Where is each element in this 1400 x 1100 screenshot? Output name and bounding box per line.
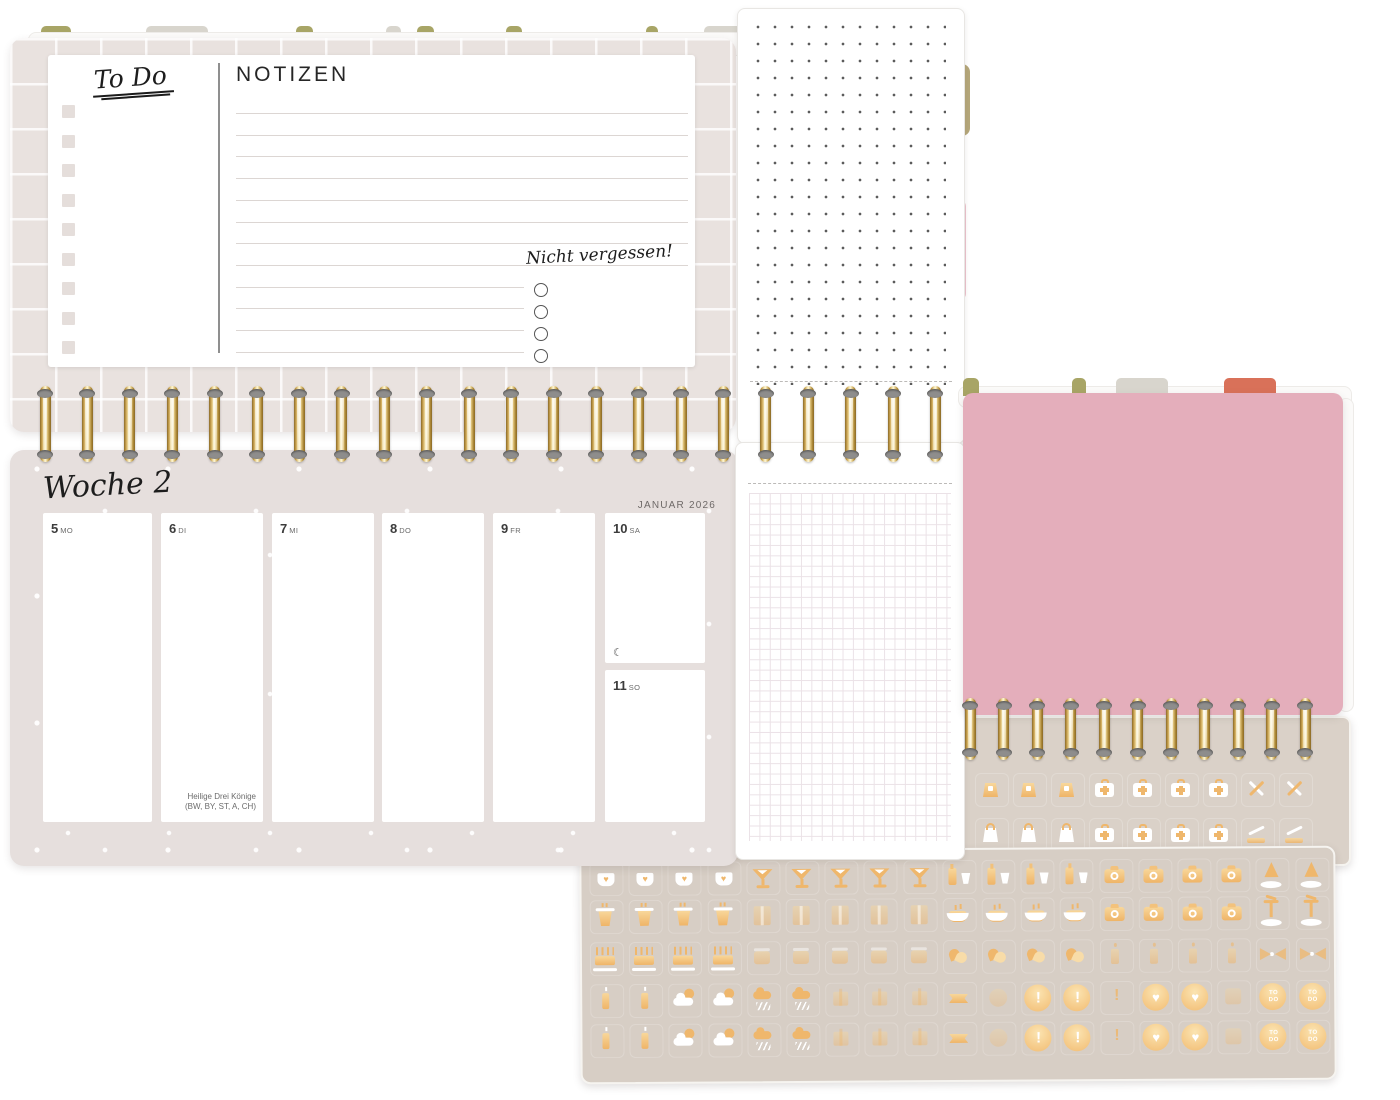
day-number: 11 [613, 678, 627, 693]
sticker-giftwrap-icon [746, 899, 780, 933]
day-column-saturday: 10SA ☾ [605, 513, 705, 663]
punched-hole [1063, 701, 1079, 710]
punched-hole [461, 450, 477, 459]
sticker-shape [715, 910, 730, 925]
sticker-shape [986, 823, 995, 830]
sticker-shape [1226, 1028, 1242, 1044]
sticker-roundcake-icon [903, 940, 937, 974]
sticker-shape [800, 879, 803, 885]
punched-hole [631, 389, 647, 398]
sticker-giftfaint-icon [865, 1022, 899, 1056]
sticker-shape [1064, 786, 1069, 791]
punched-hole [1163, 748, 1179, 757]
sticker-handheart-icon [943, 940, 977, 974]
sticker-giftfaint-icon [826, 1023, 860, 1057]
sticker-shape [839, 989, 842, 1006]
sticker-shape [879, 1028, 882, 1045]
sticker-candles2-icon [590, 984, 624, 1018]
reminder-bullet [534, 327, 548, 341]
sticker-shape [753, 991, 771, 999]
sticker-shape [1103, 831, 1107, 840]
punched-hole [1297, 701, 1313, 710]
sticker-shape [1217, 831, 1221, 840]
punched-hole [376, 389, 392, 398]
sticker-shape [713, 907, 732, 910]
notes-ruled-lines [236, 55, 688, 367]
sticker-shape [1275, 948, 1286, 960]
sticker-shape [1300, 881, 1321, 888]
sticker-shape [756, 1002, 770, 1010]
sticker-shape [1024, 823, 1033, 830]
sticker-shape: ! [1100, 1027, 1134, 1045]
sticker-cloudsun-icon [708, 983, 742, 1017]
punched-hole [715, 450, 731, 459]
sticker-shape [949, 1034, 968, 1043]
reminder-bullet [534, 283, 548, 297]
sticker-todocircle-icon: TO DO [1296, 1020, 1330, 1054]
punched-hole [885, 389, 901, 398]
sticker-roundcake-icon [864, 940, 898, 974]
spiral-ring [462, 386, 476, 462]
sticker-shape [1153, 943, 1156, 947]
sticker-roundcake-icon [825, 941, 859, 975]
sticker-candles2-icon [630, 1024, 664, 1058]
punched-hole [758, 450, 774, 459]
sticker-heartcircle-icon: ♥ [1178, 980, 1212, 1014]
sticker-faintsquare-icon [1217, 980, 1251, 1014]
todo-checkbox [62, 341, 75, 354]
sticker-giftwrap-icon [786, 899, 820, 933]
punched-hole [962, 701, 978, 710]
sticker-mug-icon: ♥ [707, 861, 741, 895]
sticker-shape [602, 993, 609, 1009]
punched-hole [419, 389, 435, 398]
sticker-shape [918, 878, 921, 884]
punched-hole [588, 389, 604, 398]
sticker-shape [918, 988, 921, 1005]
sticker-shape [1179, 831, 1183, 840]
sticker-shape: ! [1061, 1029, 1095, 1046]
ruled-line [236, 113, 688, 114]
sticker-champagne-icon [1021, 859, 1055, 893]
perforation-line [750, 381, 952, 382]
spiral-ring [886, 386, 900, 462]
day-column-thursday: 8DO [382, 513, 484, 822]
punched-hole [376, 450, 392, 459]
sticker-shape [1026, 786, 1031, 791]
day-number: 10 [613, 521, 627, 536]
sticker-shape [1149, 910, 1157, 918]
sticker-shape [754, 951, 770, 964]
sticker-sheet-back [963, 716, 1351, 866]
sticker-shape [1217, 786, 1221, 795]
sticker-shape [1025, 912, 1047, 920]
todo-notes-card: To Do NOTIZEN Nicht vergessen! [48, 55, 695, 367]
punched-hole [800, 389, 816, 398]
sticker-shape [635, 908, 654, 911]
punched-hole [503, 389, 519, 398]
day-column-wednesday: 7MI [272, 513, 374, 822]
sticker-shape [1062, 823, 1071, 830]
day-weekday: MO [60, 526, 73, 535]
punched-hole [546, 450, 562, 459]
sticker-tree-icon [1256, 858, 1290, 892]
sticker-roundcake-icon [786, 941, 820, 975]
sticker-bag-icon [1051, 773, 1085, 807]
sticker-shape: ! [1100, 987, 1134, 1005]
punched-hole [1130, 748, 1146, 757]
sticker-cloudsun-icon [668, 984, 702, 1018]
sticker-bowl-icon [1060, 897, 1094, 931]
sticker-shape [1299, 948, 1310, 960]
punched-hole [334, 450, 350, 459]
ruled-line [236, 200, 688, 201]
punched-hole [1029, 748, 1045, 757]
sticker-shape [674, 998, 694, 1006]
todo-checkbox [62, 282, 75, 295]
day-weekday: SO [629, 683, 641, 692]
sticker-shape [713, 997, 733, 1005]
sticker-shape: ! [1022, 1029, 1056, 1046]
sticker-shape [795, 1002, 809, 1010]
sticker-faintcircle-icon [982, 1022, 1016, 1056]
sticker-shape [602, 1033, 609, 1049]
punched-hole [249, 450, 265, 459]
sticker-mug-icon: ♥ [668, 862, 702, 896]
spiral-ring [589, 386, 603, 462]
sticker-shape [1072, 949, 1087, 964]
sticker-shape [840, 879, 843, 885]
spiral-ring [335, 386, 349, 462]
sticker-cup-icon [668, 900, 702, 934]
spiral-ring [1131, 698, 1145, 760]
punched-hole [546, 389, 562, 398]
spiral-ring [674, 386, 688, 462]
sticker-mug-icon: ♥ [629, 862, 663, 896]
sticker-shape [878, 905, 881, 924]
sticker-cloudsun-icon [708, 1023, 742, 1057]
sticker-shape [1040, 872, 1049, 883]
punched-hole [1063, 748, 1079, 757]
sticker-shape [635, 947, 653, 955]
sticker-camera-icon [1099, 859, 1133, 893]
sticker-shape [1304, 862, 1318, 877]
sticker-shape [713, 955, 733, 964]
sticker-shape [989, 989, 1007, 1007]
punched-hole [673, 389, 689, 398]
sticker-medkit-icon [1089, 773, 1123, 807]
sticker-champagne-icon [981, 860, 1015, 894]
todo-checkbox [62, 135, 75, 148]
sticker-shape [674, 1038, 694, 1046]
sticker-shape [793, 948, 809, 951]
sticker-handheart-icon [1021, 939, 1055, 973]
week-calendar-page: Woche 2 JANUAR 2026 5MO 6DI Heilige Drei… [10, 450, 738, 866]
sticker-shape: ♥ [1178, 1029, 1212, 1044]
punched-hole [996, 748, 1012, 757]
sticker-raincloud-icon [786, 1023, 820, 1057]
sticker-camera-icon [1217, 896, 1251, 930]
sticker-shape [713, 1037, 733, 1045]
sticker-camera-icon [1138, 859, 1172, 893]
sticker-cup-icon [707, 899, 741, 933]
sticker-shape: TO DO [1296, 990, 1330, 1003]
reminder-bullet [534, 349, 548, 363]
todo-checkbox [62, 105, 75, 118]
sticker-sheet-front: ♥♥♥♥!!!♥♥TO DOTO DO!!!♥♥TO DOTO DO [579, 846, 1336, 1085]
sticker-shape [1021, 828, 1036, 842]
spiral-ring [716, 386, 730, 462]
sticker-giftfaint-icon [864, 982, 898, 1016]
sticker-shape [1247, 838, 1265, 843]
sticker-cake-icon [590, 942, 624, 976]
sticker-shape [988, 786, 993, 791]
sticker-todocircle-icon: TO DO [1257, 1020, 1291, 1054]
sticker-cake-icon [668, 942, 702, 976]
spiral-ring [1030, 698, 1044, 760]
punched-hole [122, 450, 138, 459]
sticker-raincloud-icon [747, 983, 781, 1017]
spiral-ring [1064, 698, 1078, 760]
punched-hole [715, 389, 731, 398]
day-weekday: MI [289, 526, 298, 535]
punched-hole [885, 450, 901, 459]
spiral-ring [997, 698, 1011, 760]
day-number: 8 [390, 521, 397, 536]
sticker-exclcircle-icon: ! [1060, 981, 1094, 1015]
sticker-shape [753, 1031, 771, 1039]
sticker-flagbow-icon [943, 982, 977, 1016]
sticker-todocircle-icon: TO DO [1256, 980, 1290, 1014]
sticker-shape [1000, 873, 1009, 884]
sticker-giftwrap-icon [825, 899, 859, 933]
sticker-shape [879, 878, 882, 884]
todo-heading: To Do [91, 60, 174, 98]
day-number: 9 [501, 521, 508, 536]
punched-hole [79, 450, 95, 459]
sticker-shape [983, 828, 998, 842]
spiral-ring [1298, 698, 1312, 760]
sticker-shape: ! [1061, 989, 1095, 1006]
dot-grid-notepad [737, 8, 965, 444]
sticker-heartcircle-icon: ♥ [1139, 1021, 1173, 1055]
punched-hole [1197, 748, 1213, 757]
sticker-cake-icon [629, 942, 663, 976]
ruled-line [236, 222, 688, 223]
sticker-shape [871, 950, 887, 963]
sticker-raincloud-icon [747, 1023, 781, 1057]
punched-hole [1264, 748, 1280, 757]
spiral-ring [1164, 698, 1178, 760]
sticker-shape [1261, 919, 1282, 926]
day-column-sunday: 11SO [605, 670, 705, 822]
sticker-shape: TO DO [1257, 1030, 1291, 1043]
sticker-shape [1059, 828, 1074, 842]
sticker-shape [1225, 988, 1241, 1004]
month-label: JANUAR 2026 [638, 500, 716, 511]
sticker-faintcircle-icon [982, 982, 1016, 1016]
sticker-shape [595, 956, 615, 965]
sticker-camera-icon [1177, 858, 1211, 892]
sticker-shape [1064, 912, 1086, 920]
ruled-line [236, 265, 688, 266]
sticker-camera-icon [1099, 897, 1133, 931]
todo-checkbox [62, 312, 75, 325]
sticker-medkit-icon [1127, 773, 1161, 807]
sticker-shape [1079, 872, 1088, 883]
spiral-ring [547, 386, 561, 462]
sticker-shape: TO DO [1257, 990, 1291, 1003]
ruled-line [236, 135, 688, 136]
sticker-toolsx-icon [1279, 773, 1313, 807]
holiday-name: Heilige Drei Könige [165, 792, 256, 802]
sticker-shape [1103, 786, 1107, 795]
spiral-ring [208, 386, 222, 462]
punched-hole [588, 450, 604, 459]
sticker-shape [1141, 831, 1145, 840]
sticker-shape [961, 873, 970, 884]
day-header: 6DI [161, 513, 263, 538]
sticker-cup-icon [629, 900, 663, 934]
sticker-tree-icon [1295, 858, 1329, 892]
spiral-ring [123, 386, 137, 462]
perforation-line [748, 483, 952, 484]
sticker-shape [1189, 949, 1197, 964]
sticker-shape [1141, 786, 1145, 795]
card-divider [218, 63, 220, 353]
sticker-palm-icon [1295, 896, 1329, 930]
spiral-ring [80, 386, 94, 462]
sticker-candles2-icon [590, 1024, 624, 1058]
sticker-cake-icon [707, 941, 741, 975]
sticker-bag-icon [1013, 773, 1047, 807]
sticker-shape [879, 988, 882, 1005]
punched-hole [673, 450, 689, 459]
sticker-shape [641, 993, 648, 1009]
square-grid [749, 493, 951, 841]
sticker-bowl-icon [942, 898, 976, 932]
holiday-regions: (BW, BY, ST, A, CH) [165, 802, 256, 812]
todo-notes-page: To Do NOTIZEN Nicht vergessen! [10, 38, 736, 432]
sticker-medkit-icon [1165, 773, 1199, 807]
day-weekday: DO [399, 526, 411, 535]
sticker-shape: ! [1021, 989, 1055, 1006]
day-header: 10SA [605, 513, 705, 538]
sticker-shape [1110, 910, 1118, 918]
sticker-martini-icon [746, 861, 780, 895]
moon-phase-icon: ☾ [613, 646, 623, 659]
sticker-shape [1260, 948, 1271, 960]
sticker-raincloud-icon [786, 983, 820, 1017]
sticker-giftwrap-icon [864, 898, 898, 932]
day-header: 9FR [493, 513, 595, 538]
punched-hole [1197, 701, 1213, 710]
sticker-exclcircle-icon: ! [1022, 1021, 1056, 1055]
day-column-tuesday: 6DI Heilige Drei Könige (BW, BY, ST, A, … [161, 513, 263, 822]
sticker-exclcircle-icon: ! [1061, 1021, 1095, 1055]
sticker-shape [637, 911, 652, 926]
sticker-shape: ♥ [637, 874, 654, 885]
punched-hole [1130, 701, 1146, 710]
day-weekday: FR [510, 526, 521, 535]
dot-grid [756, 25, 946, 385]
punched-hole [927, 389, 943, 398]
day-number: 7 [280, 521, 287, 536]
sticker-shape [871, 947, 887, 950]
day-column-friday: 9FR [493, 513, 595, 822]
punched-hole [1029, 701, 1045, 710]
punched-hole [631, 450, 647, 459]
sticker-bow-icon [1295, 938, 1329, 972]
day-header: 8DO [382, 513, 484, 538]
sticker-mug-icon: ♥ [589, 862, 623, 896]
sticker-shape [1150, 949, 1158, 964]
punched-hole [962, 748, 978, 757]
spiral-ring [1198, 698, 1212, 760]
sticker-shape [761, 879, 764, 885]
ruled-line [236, 308, 524, 309]
sticker-shape [634, 956, 654, 965]
sticker-camera-icon [1138, 897, 1172, 931]
sticker-shape [1110, 872, 1118, 880]
spiral-ring [1265, 698, 1279, 760]
ruled-line [236, 287, 524, 288]
punched-hole [843, 450, 859, 459]
sticker-palm-icon [1256, 896, 1290, 930]
sticker-shape [1248, 825, 1265, 835]
sticker-shape [713, 946, 731, 954]
day-column-monday: 5MO [43, 513, 152, 822]
sticker-giftfaint-icon [904, 982, 938, 1016]
sticker-shape [832, 948, 848, 951]
sticker-shape [674, 908, 693, 911]
sticker-shape: ♥ [715, 873, 732, 884]
spiral-ring [504, 386, 518, 462]
sticker-bow-icon [1256, 938, 1290, 972]
sticker-shape [948, 868, 956, 885]
sticker-candles2-icon [629, 984, 663, 1018]
punched-hole [334, 389, 350, 398]
todo-checkbox [62, 164, 75, 177]
sticker-cloudsun-icon [669, 1024, 703, 1058]
sticker-shape [673, 956, 693, 965]
ruled-line [236, 352, 524, 353]
day-header: 7MI [272, 513, 374, 538]
day-header: 11SO [605, 670, 705, 695]
sticker-medkit-icon [1203, 773, 1237, 807]
day-weekday: SA [629, 526, 640, 535]
punched-hole [758, 389, 774, 398]
sticker-giftfaint-icon [904, 1022, 938, 1056]
sticker-camera-icon [1178, 896, 1212, 930]
spiral-ring [963, 698, 977, 760]
sticker-shape [644, 1027, 646, 1031]
todo-checkbox-column [62, 105, 78, 355]
sticker-shape [1231, 942, 1234, 946]
sticker-shape [949, 994, 968, 1003]
spiral-ring [38, 386, 52, 462]
punched-hole [249, 389, 265, 398]
sticker-candle-icon [1217, 938, 1251, 972]
sticker-martini-icon [785, 861, 819, 895]
sticker-shape [754, 948, 770, 951]
sticker-camera-icon [1217, 858, 1251, 892]
sticker-martini-icon [864, 860, 898, 894]
spiral-ring [1231, 698, 1245, 760]
punched-hole [37, 450, 53, 459]
ruled-line [236, 178, 688, 179]
punched-hole [1096, 701, 1112, 710]
